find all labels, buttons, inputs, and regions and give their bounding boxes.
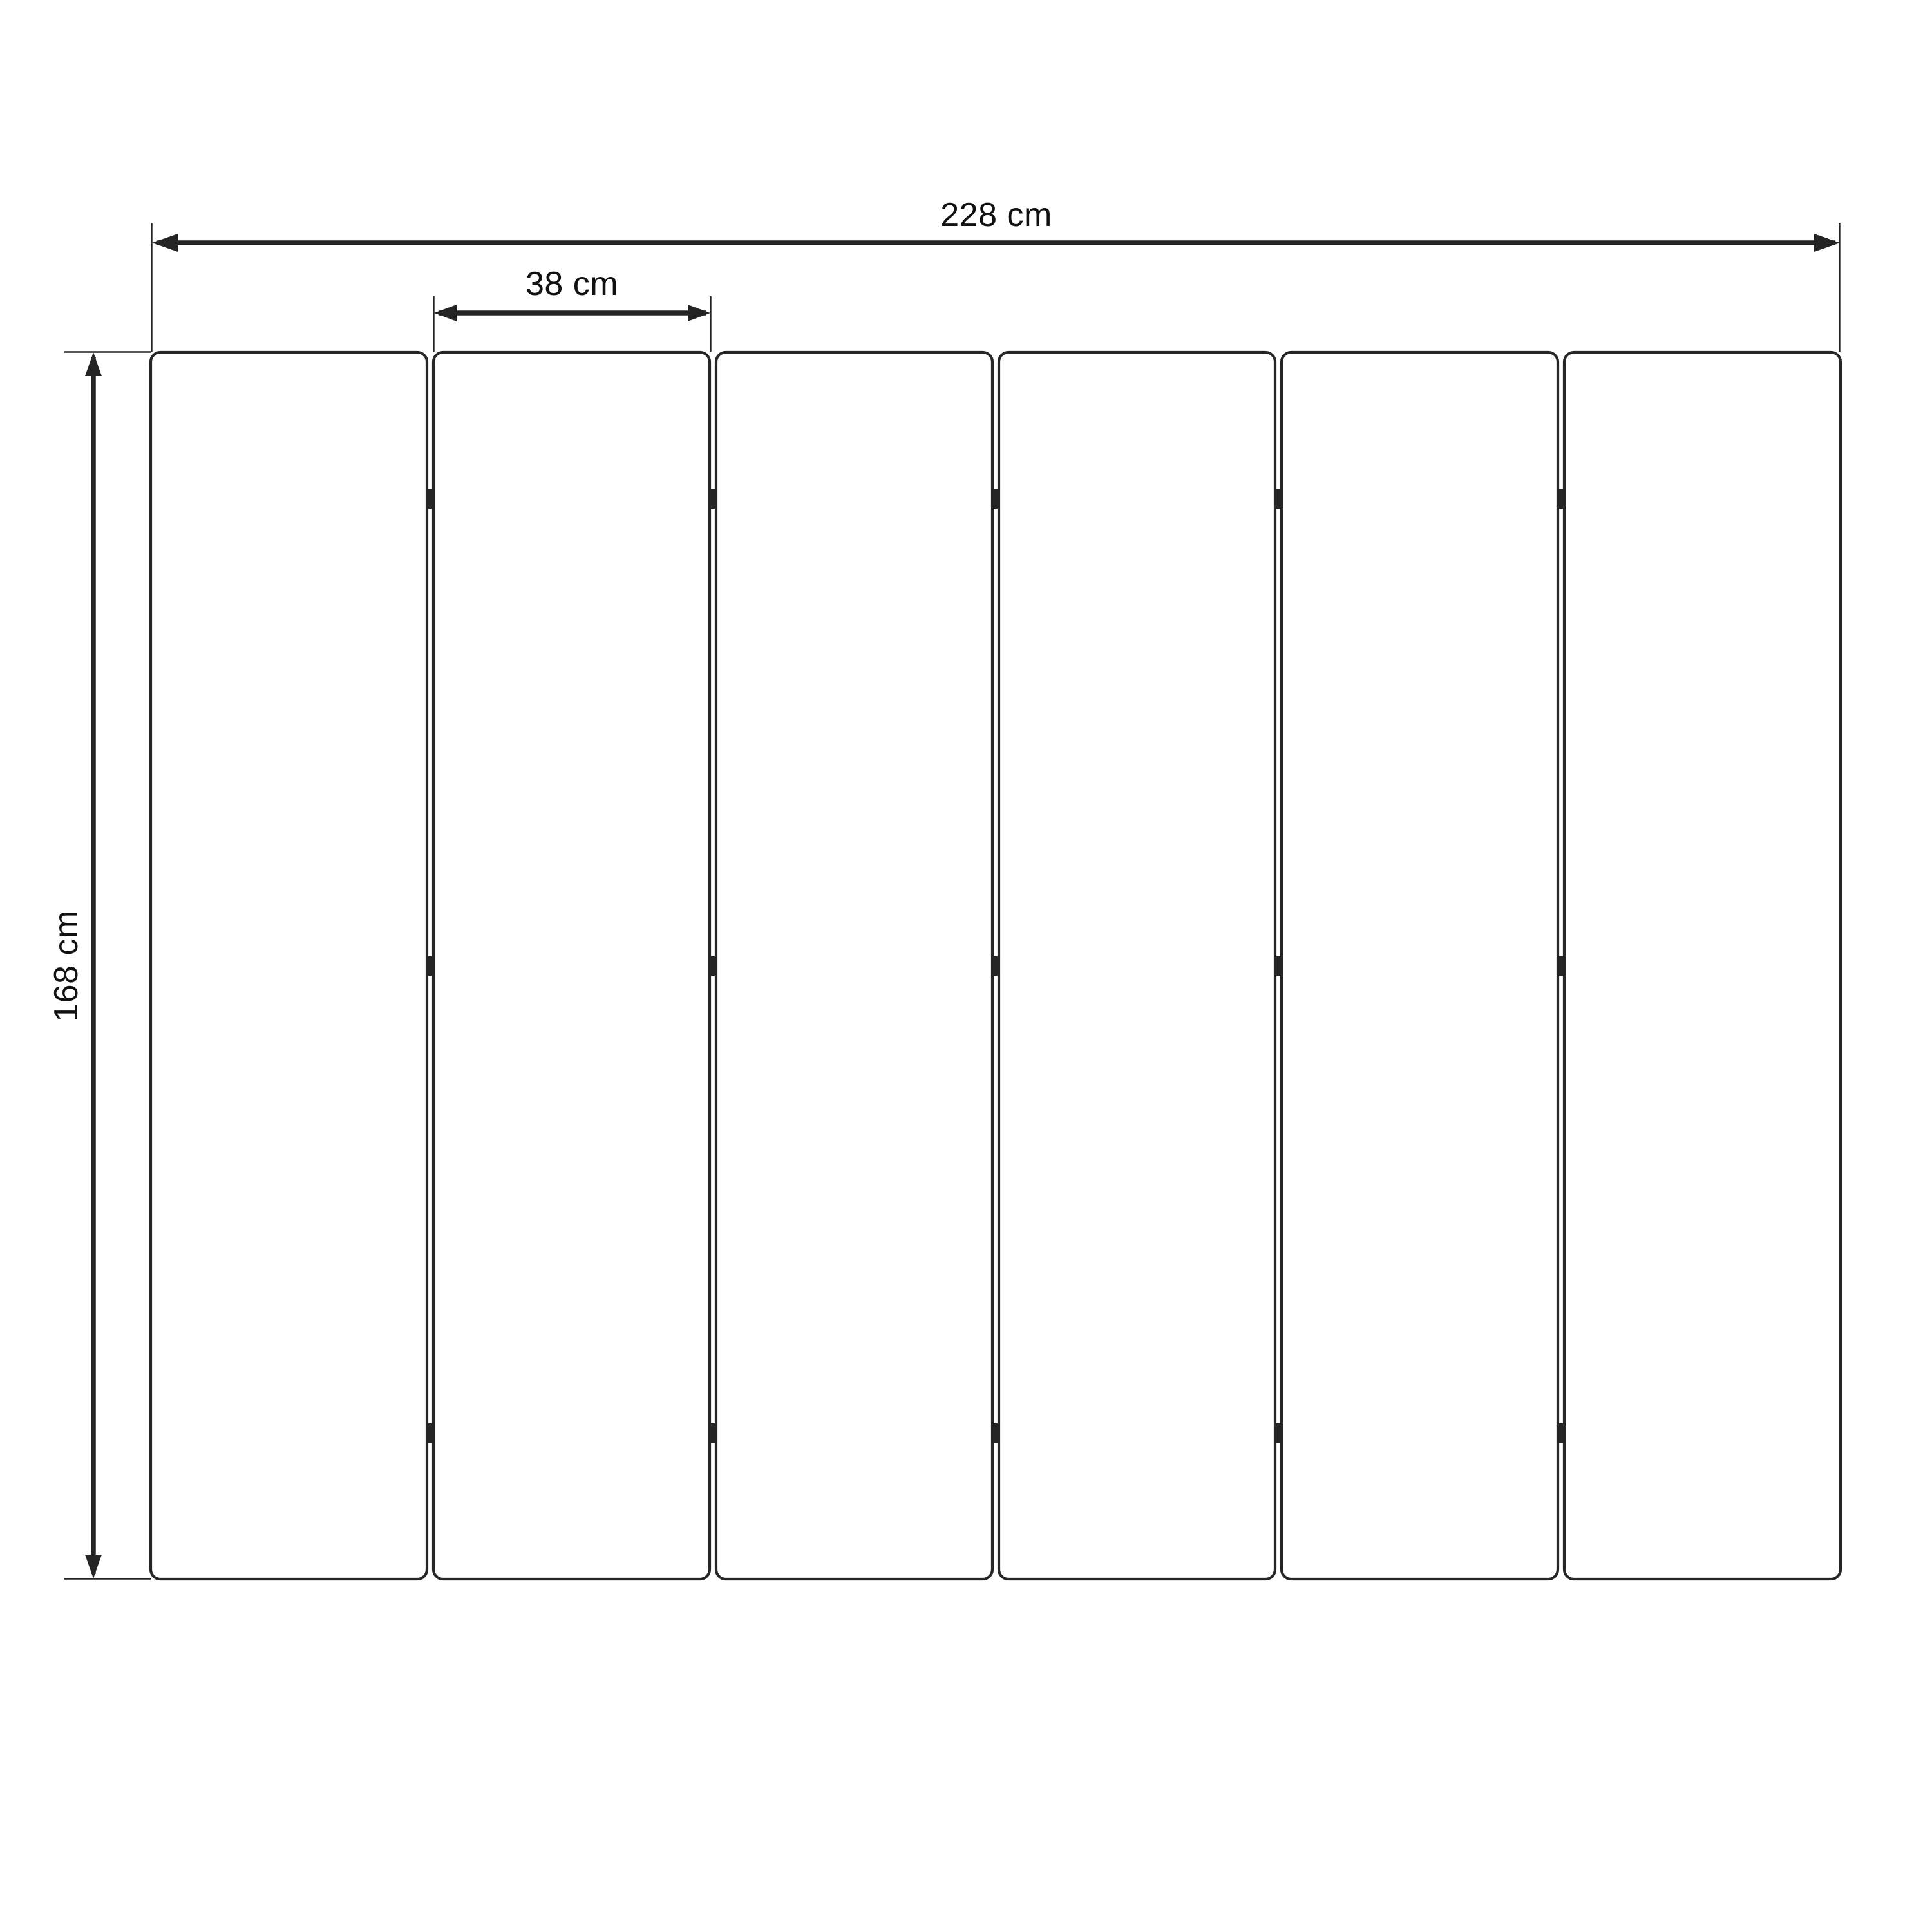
- hinge: [709, 956, 717, 976]
- hinge: [992, 489, 1000, 509]
- arrowhead-right-icon: [1814, 234, 1840, 252]
- hinge: [1274, 1423, 1283, 1443]
- hinge: [426, 1423, 435, 1443]
- arrowhead-left-icon: [434, 305, 457, 321]
- dimension-panel-width: 38 cm: [434, 265, 711, 352]
- hinge: [709, 489, 717, 509]
- hinge: [1557, 956, 1566, 976]
- hinge: [1274, 956, 1283, 976]
- panel-1: [151, 352, 427, 1579]
- dimension-height: 168 cm: [48, 352, 151, 1579]
- hinge: [992, 1423, 1000, 1443]
- label-height: 168 cm: [48, 910, 85, 1022]
- hinge: [426, 956, 435, 976]
- panel-6: [1564, 352, 1841, 1579]
- label-total-width: 228 cm: [940, 196, 1052, 234]
- panel-4: [999, 352, 1275, 1579]
- arrowhead-top-icon: [85, 352, 102, 376]
- panel-3: [716, 352, 992, 1579]
- hinge: [1557, 489, 1566, 509]
- hinge: [1274, 489, 1283, 509]
- panel-5: [1282, 352, 1558, 1579]
- label-panel-width: 38 cm: [526, 265, 618, 303]
- panel-2: [433, 352, 710, 1579]
- hinge: [709, 1423, 717, 1443]
- hinge: [1557, 1423, 1566, 1443]
- hinge: [426, 489, 435, 509]
- arrowhead-bottom-icon: [85, 1555, 102, 1578]
- dimension-total-width: 228 cm: [152, 196, 1841, 352]
- arrowhead-left-icon: [152, 234, 178, 252]
- drawing-canvas: 228 cm 38 cm 168 cm: [0, 0, 1932, 1932]
- arrowhead-right-icon: [688, 305, 710, 321]
- dimension-drawing: 228 cm 38 cm 168 cm: [0, 0, 1932, 1932]
- hinge: [992, 956, 1000, 976]
